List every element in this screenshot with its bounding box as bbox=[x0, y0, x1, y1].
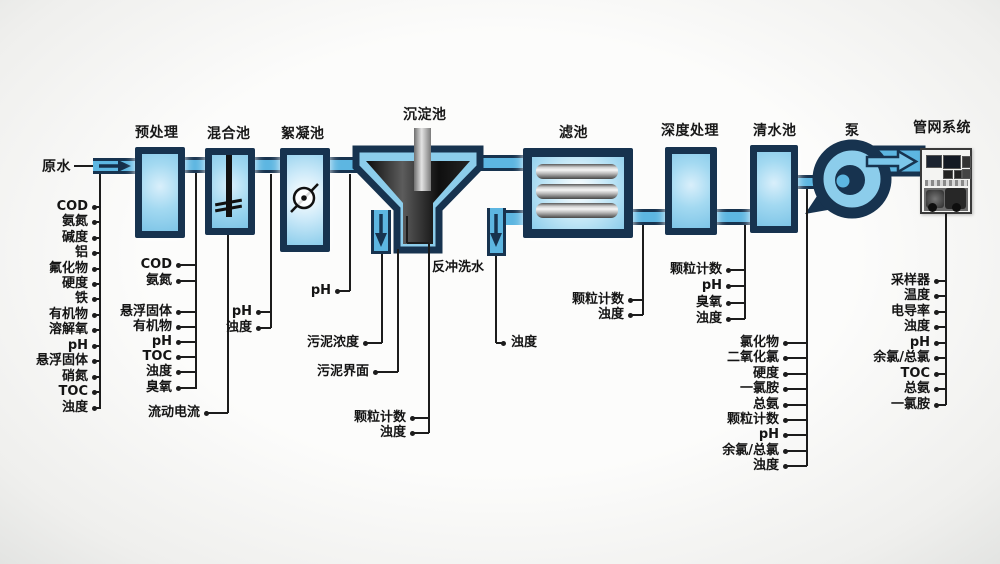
mixing_out-sensor-label: 浊度 bbox=[226, 320, 252, 336]
clear_water_out-tick bbox=[785, 465, 807, 467]
clear_water_out-sensor-dot bbox=[783, 433, 788, 438]
raw_water-sensor-label: 硝氮 bbox=[62, 369, 88, 385]
raw_water-sensor-dot bbox=[92, 390, 97, 395]
network_out-sensor-label: 浊度 bbox=[904, 319, 930, 335]
clear_water_out-tick bbox=[785, 373, 807, 375]
backwash_out-connector-line bbox=[495, 256, 497, 343]
clear_water_out-tick bbox=[785, 434, 807, 436]
clear_water_out-sensor-dot bbox=[783, 449, 788, 454]
pretreatment_out-sensor-dot bbox=[176, 370, 181, 375]
pretreatment_out-tick bbox=[178, 280, 196, 282]
clear_water_out-sensor-dot bbox=[783, 356, 788, 361]
filter_out-sensor-label: 颗粒计数 bbox=[572, 292, 624, 308]
sludge_interface-sensor-dot bbox=[373, 370, 378, 375]
raw_water-sensor-label: 氟化物 bbox=[49, 261, 88, 277]
sludge_interface-sensor-label: 污泥界面 bbox=[317, 364, 369, 380]
raw_water-sensor-label: pH bbox=[68, 338, 88, 354]
raw_water-sensor-label: 氨氮 bbox=[62, 214, 88, 230]
filter_out-sensor-label: 浊度 bbox=[598, 307, 624, 323]
network_out-sensor-dot bbox=[934, 356, 939, 361]
raw_water-sensor-dot bbox=[92, 205, 97, 210]
raw_water-sensor-dot bbox=[92, 267, 97, 272]
network_out-sensor-label: 一氯胺 bbox=[891, 397, 930, 413]
raw_water-sensor-label: 悬浮固体 bbox=[36, 353, 88, 369]
pretreatment_out-sensor-dot bbox=[176, 310, 181, 315]
advanced_out-connector-line bbox=[744, 225, 746, 319]
network_out-sensor-dot bbox=[934, 310, 939, 315]
network_out-sensor-label: 采样器 bbox=[891, 273, 930, 289]
clear_water_out-tick bbox=[785, 450, 807, 452]
raw_water-sensor-dot bbox=[92, 236, 97, 241]
pretreatment_out-sensor-dot bbox=[176, 355, 181, 360]
filter_out-sensor-dot bbox=[628, 298, 633, 303]
clear_water_out-sensor-label: 氯化物 bbox=[740, 335, 779, 351]
clear_water_out-sensor-dot bbox=[783, 341, 788, 346]
mixing_out-sensor-dot bbox=[256, 310, 261, 315]
clear_water_out-sensor-dot bbox=[783, 464, 788, 469]
raw_water-sensor-label: 溶解氧 bbox=[49, 322, 88, 338]
pretreatment_out-tick bbox=[178, 264, 196, 266]
raw_water-sensor-label: COD bbox=[57, 199, 88, 215]
raw_water-connector-line bbox=[99, 174, 101, 409]
settled_out-connector-seg-1 bbox=[406, 216, 408, 243]
clear_water_out-tick bbox=[785, 342, 807, 344]
mixing_tank-tick bbox=[206, 412, 228, 414]
clear_water_out-tick bbox=[785, 404, 807, 406]
pretreatment_out-tick bbox=[178, 341, 196, 343]
raw_water-sensor-dot bbox=[92, 313, 97, 318]
pretreatment_out-sensor-label: 氨氮 bbox=[146, 273, 172, 289]
raw_water-sensor-label: 铁 bbox=[75, 291, 88, 307]
pretreatment_out-sensor-label: pH bbox=[152, 334, 172, 350]
water-treatment-process-diagram: 原水 预处理 混合池 絮凝池 沉淀池 滤池 深度处理 清水池 泵 管网系统 反冲… bbox=[0, 0, 1000, 564]
clear_water_out-sensor-label: pH bbox=[759, 427, 779, 443]
settled_out-sensor-dot bbox=[410, 431, 415, 436]
advanced_out-sensor-dot bbox=[726, 268, 731, 273]
raw_water-sensor-dot bbox=[92, 251, 97, 256]
mixing_tank-sensor-dot bbox=[204, 411, 209, 416]
network_out-sensor-label: 电导率 bbox=[891, 304, 930, 320]
clear_water_out-sensor-label: 硬度 bbox=[753, 366, 779, 382]
clear_water_out-sensor-dot bbox=[783, 418, 788, 423]
sludge-connector-line bbox=[381, 254, 383, 343]
pretreatment_out-sensor-label: TOC bbox=[143, 349, 172, 365]
pretreatment_out-tick bbox=[178, 326, 196, 328]
network_out-sensor-label: pH bbox=[910, 335, 930, 351]
mixing_out-connector-line bbox=[270, 174, 272, 328]
advanced_out-sensor-label: 浊度 bbox=[696, 311, 722, 327]
raw_water-sensor-dot bbox=[92, 344, 97, 349]
raw_water-sensor-dot bbox=[92, 406, 97, 411]
settled_out-sensor-dot bbox=[410, 416, 415, 421]
advanced_out-tick bbox=[728, 285, 745, 287]
clear_water_out-sensor-dot bbox=[783, 387, 788, 392]
sludge_interface-connector-line bbox=[397, 249, 399, 372]
pretreatment_out-sensor-dot bbox=[176, 279, 181, 284]
network_out-sensor-label: 温度 bbox=[904, 288, 930, 304]
pretreatment_out-sensor-label: 臭氧 bbox=[146, 380, 172, 396]
settled_out-connector-seg-0 bbox=[407, 242, 429, 244]
advanced_out-tick bbox=[728, 302, 745, 304]
sludge-sensor-label: 污泥浓度 bbox=[307, 335, 359, 351]
flocculation_out-sensor-dot bbox=[335, 289, 340, 294]
pretreatment_out-sensor-dot bbox=[176, 325, 181, 330]
pretreatment_out-sensor-label: 悬浮固体 bbox=[120, 304, 172, 320]
pretreatment_out-sensor-label: 浊度 bbox=[146, 364, 172, 380]
backwash_out-sensor-label: 浊度 bbox=[511, 335, 537, 351]
raw_water-sensor-dot bbox=[92, 297, 97, 302]
advanced_out-sensor-dot bbox=[726, 317, 731, 322]
clear_water_out-sensor-dot bbox=[783, 372, 788, 377]
clear_water_out-sensor-label: 余氯/总氯 bbox=[722, 443, 779, 459]
network_out-sensor-dot bbox=[934, 341, 939, 346]
clear_water_out-sensor-label: 一氯胺 bbox=[740, 381, 779, 397]
raw_water-sensor-dot bbox=[92, 220, 97, 225]
settled_out-sensor-label: 颗粒计数 bbox=[354, 410, 406, 426]
flocculation_out-sensor-label: pH bbox=[311, 283, 331, 299]
clear_water_out-tick bbox=[785, 419, 807, 421]
sludge_interface-tick bbox=[375, 371, 398, 373]
backwash_out-sensor-dot bbox=[501, 341, 506, 346]
clear_water_out-sensor-label: 总氨 bbox=[753, 397, 779, 413]
advanced_out-sensor-dot bbox=[726, 301, 731, 306]
network_out-sensor-label: 总氨 bbox=[904, 381, 930, 397]
raw_water-sensor-dot bbox=[92, 359, 97, 364]
network_out-sensor-dot bbox=[934, 294, 939, 299]
pretreatment_out-sensor-dot bbox=[176, 386, 181, 391]
pretreatment_out-tick bbox=[178, 387, 196, 389]
raw_water-sensor-dot bbox=[92, 282, 97, 287]
raw_water-sensor-label: 铝 bbox=[75, 245, 88, 261]
sensor-annotations: COD氨氮碱度铝氟化物硬度铁有机物溶解氧pH悬浮固体硝氮TOC浊度COD氨氮悬浮… bbox=[0, 0, 1000, 564]
pretreatment_out-tick bbox=[178, 371, 196, 373]
raw_water-sensor-label: 有机物 bbox=[49, 307, 88, 323]
raw_water-sensor-label: 碱度 bbox=[62, 230, 88, 246]
mixing_out-sensor-dot bbox=[256, 326, 261, 331]
network_out-connector-line bbox=[945, 213, 947, 405]
pretreatment_out-sensor-dot bbox=[176, 263, 181, 268]
settled_out-tick bbox=[412, 432, 429, 434]
settled_out-connector-line bbox=[428, 243, 430, 433]
network_out-sensor-label: TOC bbox=[901, 366, 930, 382]
network_out-sensor-dot bbox=[934, 403, 939, 408]
advanced_out-sensor-label: 颗粒计数 bbox=[670, 262, 722, 278]
raw_water-sensor-dot bbox=[92, 328, 97, 333]
pretreatment_out-tick bbox=[178, 311, 196, 313]
settled_out-sensor-label: 浊度 bbox=[380, 425, 406, 441]
network_out-sensor-dot bbox=[934, 372, 939, 377]
pretreatment_out-sensor-label: 有机物 bbox=[133, 319, 172, 335]
raw_water-sensor-label: 浊度 bbox=[62, 400, 88, 416]
clear_water_out-sensor-label: 颗粒计数 bbox=[727, 412, 779, 428]
advanced_out-sensor-dot bbox=[726, 284, 731, 289]
advanced_out-tick bbox=[728, 318, 745, 320]
pretreatment_out-tick bbox=[178, 356, 196, 358]
clear_water_out-tick bbox=[785, 357, 807, 359]
clear_water_out-sensor-dot bbox=[783, 403, 788, 408]
network_out-sensor-label: 余氯/总氯 bbox=[873, 350, 930, 366]
raw_water-sensor-label: 硬度 bbox=[62, 276, 88, 292]
sludge-sensor-dot bbox=[363, 341, 368, 346]
raw_water-sensor-dot bbox=[92, 375, 97, 380]
filter_out-sensor-dot bbox=[628, 313, 633, 318]
raw_water-sensor-label: TOC bbox=[59, 384, 88, 400]
flocculation_out-connector-line bbox=[349, 174, 351, 291]
network_out-sensor-dot bbox=[934, 279, 939, 284]
clear_water_out-sensor-label: 浊度 bbox=[753, 458, 779, 474]
sludge-tick bbox=[365, 342, 382, 344]
clear_water_out-connector-line bbox=[806, 189, 808, 466]
advanced_out-sensor-label: pH bbox=[702, 278, 722, 294]
advanced_out-tick bbox=[728, 269, 745, 271]
advanced_out-sensor-label: 臭氧 bbox=[696, 295, 722, 311]
mixing_tank-sensor-label: 流动电流 bbox=[148, 405, 200, 421]
pretreatment_out-sensor-dot bbox=[176, 340, 181, 345]
clear_water_out-tick bbox=[785, 388, 807, 390]
settled_out-tick bbox=[412, 417, 429, 419]
clear_water_out-sensor-label: 二氧化氯 bbox=[727, 350, 779, 366]
filter_out-connector-line bbox=[642, 225, 644, 315]
network_out-sensor-dot bbox=[934, 387, 939, 392]
mixing_out-sensor-label: pH bbox=[232, 304, 252, 320]
network_out-sensor-dot bbox=[934, 325, 939, 330]
pretreatment_out-sensor-label: COD bbox=[141, 257, 172, 273]
